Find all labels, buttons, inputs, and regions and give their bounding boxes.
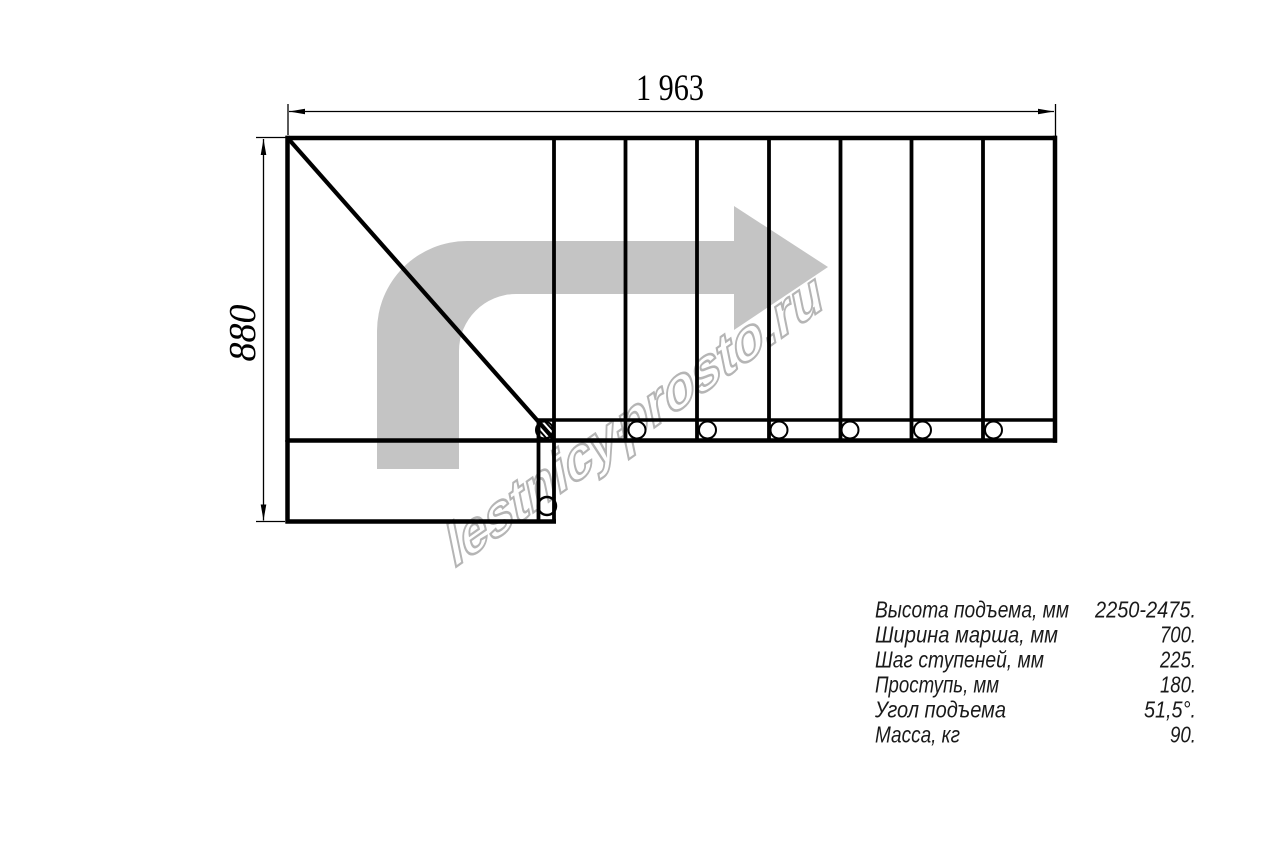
svg-text:Проступь, мм: Проступь, мм bbox=[875, 672, 999, 698]
svg-text:90.: 90. bbox=[1170, 722, 1196, 748]
svg-text:1 963: 1 963 bbox=[636, 68, 704, 109]
svg-text:225.: 225. bbox=[1159, 647, 1196, 673]
svg-text:Высота подъема, мм: Высота подъема, мм bbox=[875, 597, 1069, 623]
svg-text:Ширина марша, мм: Ширина марша, мм bbox=[875, 622, 1058, 648]
svg-text:Угол подъема: Угол подъема bbox=[874, 697, 1006, 723]
svg-text:51,5°.: 51,5°. bbox=[1144, 697, 1196, 723]
svg-text:Шаг ступеней, мм: Шаг ступеней, мм bbox=[875, 647, 1044, 673]
svg-text:2250-2475.: 2250-2475. bbox=[1094, 597, 1196, 623]
svg-text:700.: 700. bbox=[1160, 622, 1196, 648]
svg-text:880: 880 bbox=[222, 305, 264, 362]
svg-text:180.: 180. bbox=[1160, 672, 1196, 698]
svg-text:Масса, кг: Масса, кг bbox=[875, 722, 960, 748]
